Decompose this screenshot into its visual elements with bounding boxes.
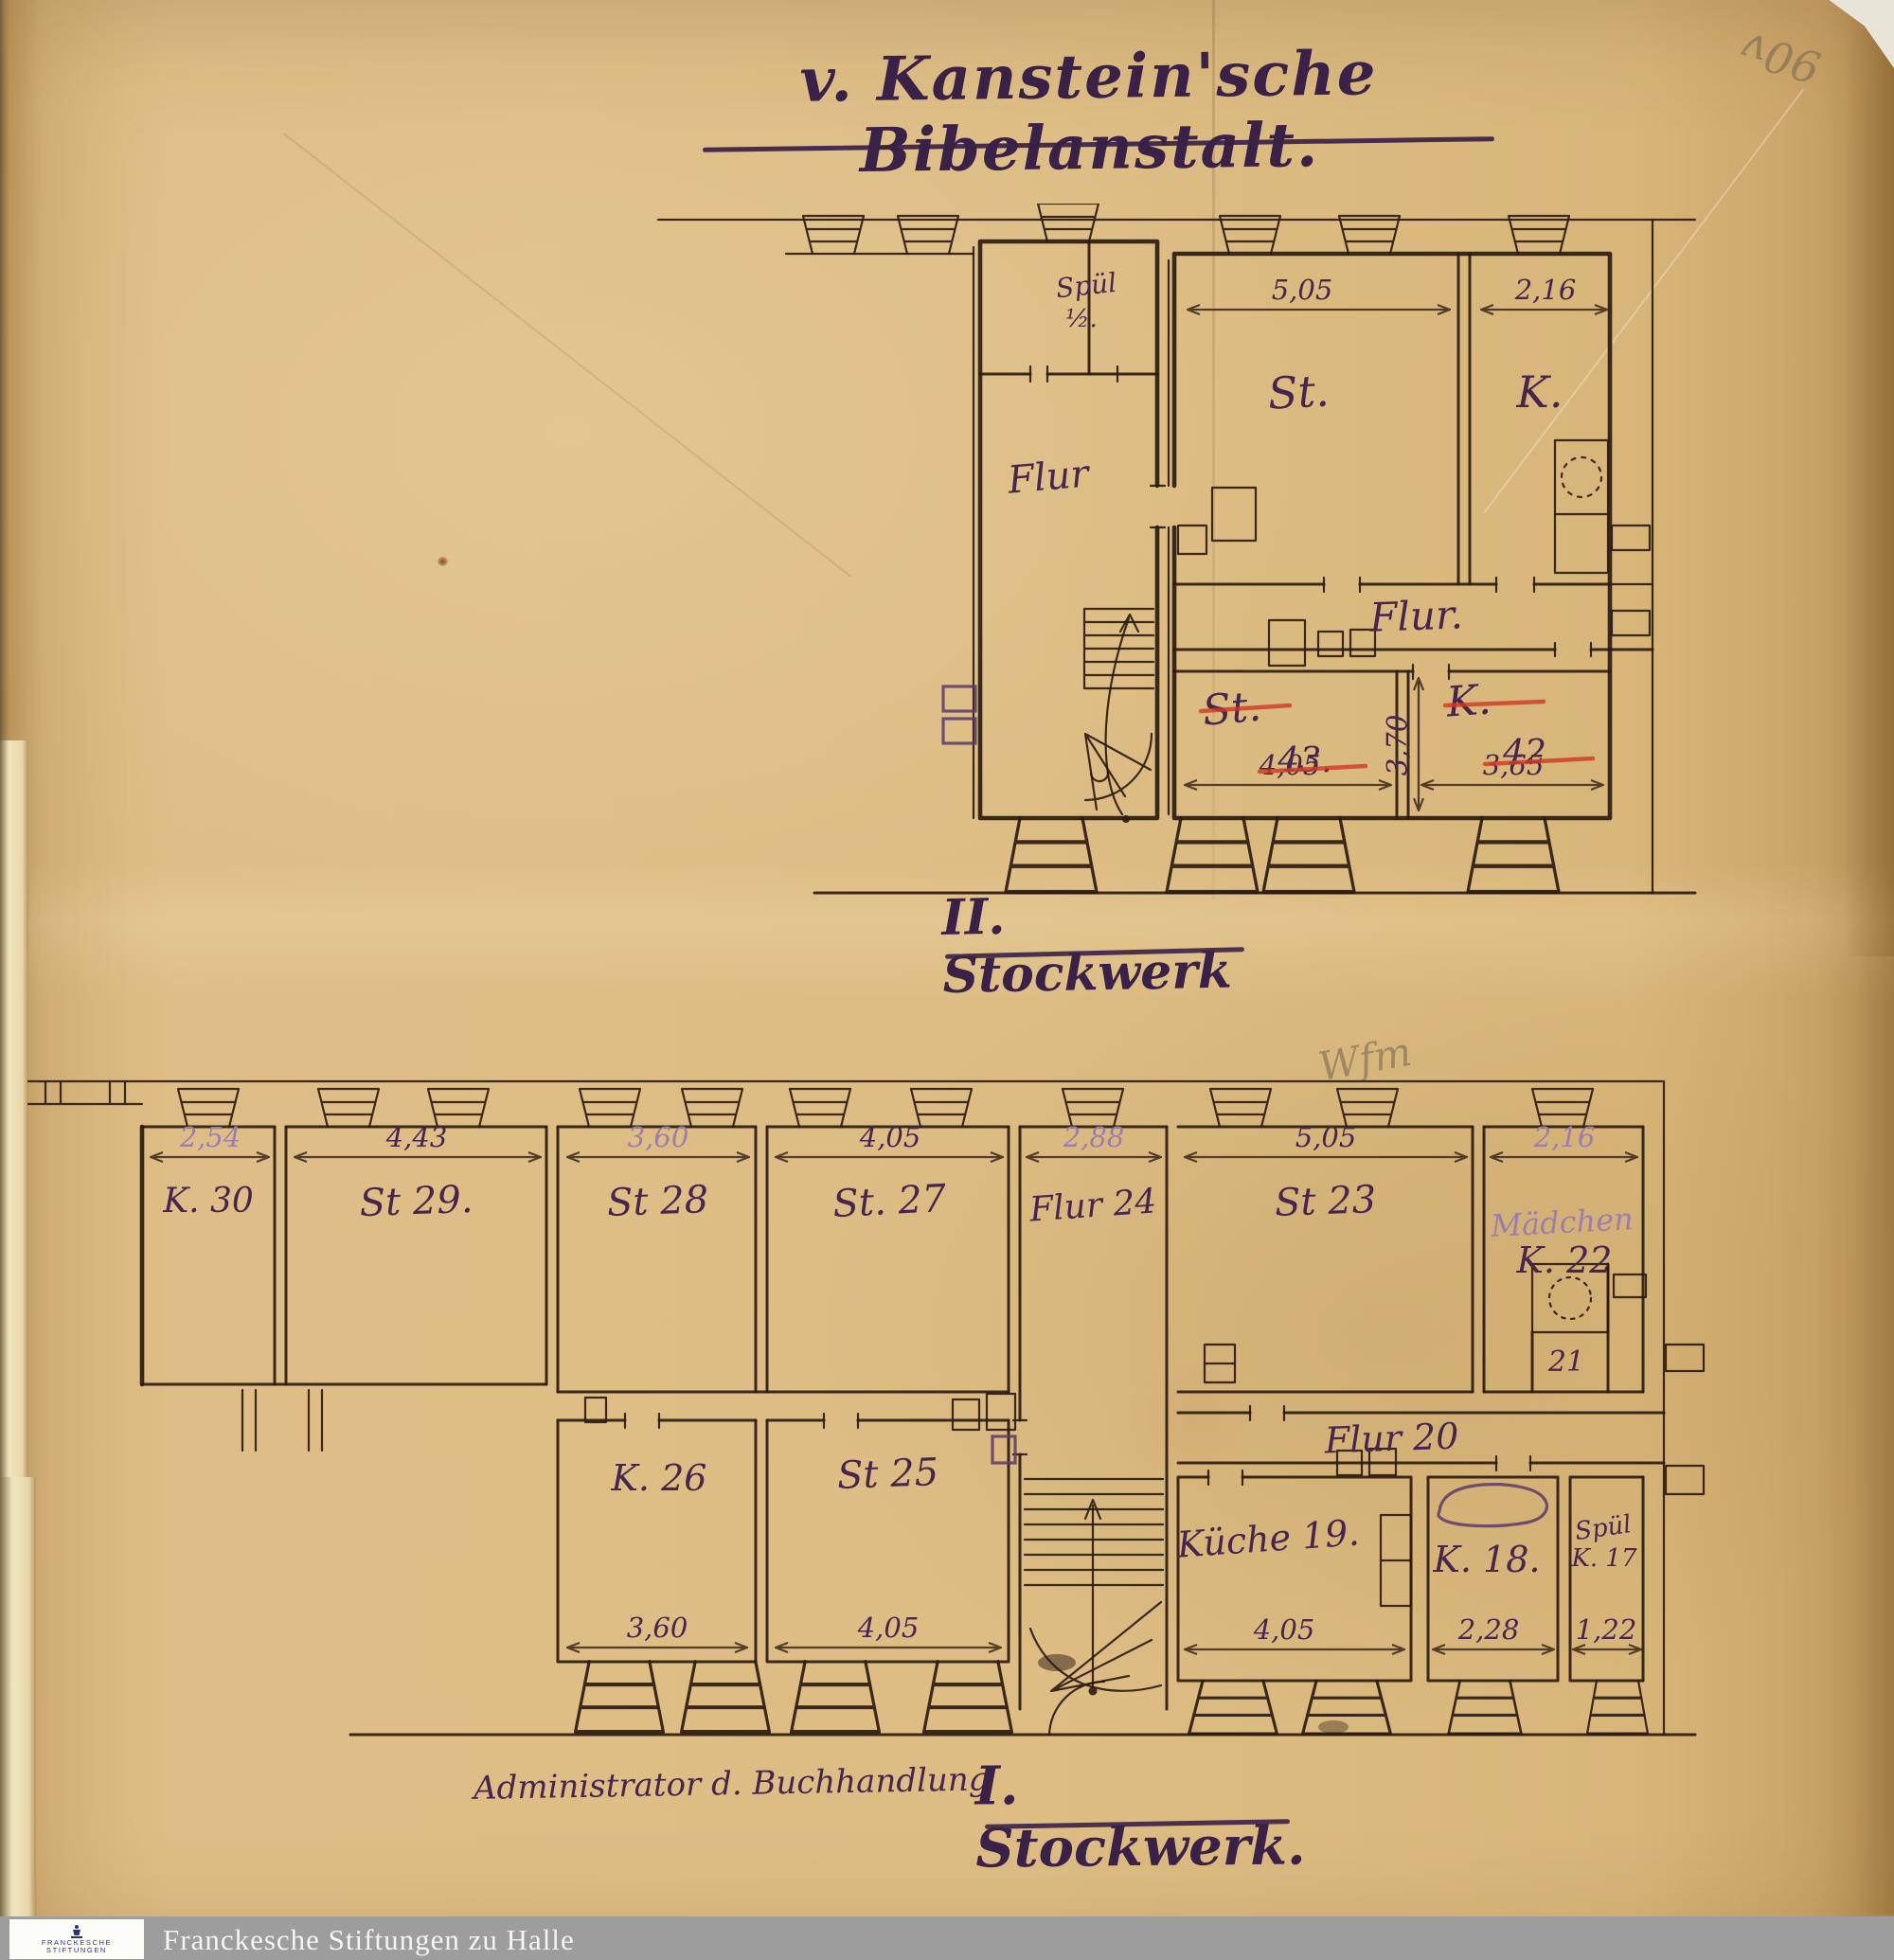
- room-label-k: K.: [1516, 366, 1563, 418]
- window-icon: [318, 1089, 379, 1127]
- room-label-flur20: Flur 20: [1323, 1416, 1459, 1462]
- window-icon: [682, 1662, 770, 1732]
- dim-k18: 2,28: [1434, 1613, 1553, 1649]
- upper-plan-stair: [1084, 609, 1153, 823]
- room-label-st25: St 25: [836, 1451, 939, 1498]
- window-icon: [1263, 818, 1354, 892]
- room-number-42: 42: [1502, 734, 1546, 773]
- room-label-st29: St 29.: [359, 1178, 473, 1225]
- room-label-k26: K. 26: [611, 1457, 707, 1499]
- dim-text: 2,88: [1063, 1121, 1125, 1153]
- room-label-k30: K. 30: [162, 1182, 254, 1221]
- window-icon: [1449, 1681, 1522, 1734]
- footer-title: Franckesche Stiftungen zu Halle: [163, 1923, 575, 1957]
- window-icon: [682, 1089, 742, 1127]
- dim-text: 5,05: [1272, 274, 1333, 306]
- window-icon: [576, 1662, 664, 1732]
- room-label-st28: St 28: [606, 1178, 709, 1225]
- window-icon: [1468, 818, 1559, 892]
- page-edge-right-lower: [1856, 956, 1894, 1915]
- window-icon: [1587, 1681, 1648, 1734]
- dim-st25: 4,05: [777, 1612, 1000, 1648]
- page-edge-right: [1845, 0, 1894, 956]
- dim-upper-k-width: 2,16: [1482, 274, 1606, 310]
- lower-plan-fixtures: [953, 1264, 1646, 1734]
- dim-k17: 1,22: [1574, 1613, 1640, 1649]
- dim-upper-k42-height: 3,70: [1381, 679, 1419, 810]
- upper-plan-windows: [803, 204, 1569, 892]
- window-icon: [1038, 204, 1099, 241]
- window-icon: [1339, 216, 1400, 254]
- window-icon: [1509, 216, 1569, 254]
- window-icon: [898, 216, 958, 254]
- window-icon: [924, 1662, 1012, 1732]
- room-label-st: St.: [1266, 365, 1330, 419]
- franckesche-logo-icon: [69, 1924, 84, 1939]
- dim-text: 2,54: [179, 1121, 241, 1153]
- room-label-spuel: Spül: [1054, 267, 1117, 305]
- room-label-k18: K. 18.: [1433, 1539, 1541, 1580]
- dim-text: 4,05: [859, 1121, 921, 1153]
- room-label-21: 21: [1547, 1345, 1584, 1379]
- dim-text: 4,05: [1253, 1613, 1315, 1646]
- scanned-floorplan-page: v. Kanstein'sche Bibelanstalt. 90v: [0, 0, 1894, 1960]
- window-icon: [792, 1662, 880, 1732]
- window-icon: [1167, 818, 1258, 892]
- rust-stain: [438, 557, 448, 566]
- room-label-maedchen: Mädchen: [1489, 1201, 1634, 1244]
- dim-text: 3,70: [1381, 715, 1413, 776]
- logo-caption-line2: STIFTUNGEN: [46, 1947, 107, 1955]
- room-label-k22: K. 22: [1516, 1239, 1613, 1281]
- dim-text: 1,22: [1576, 1613, 1637, 1646]
- caption-ii-stockwerk: II. Stockwerk: [941, 883, 1265, 1005]
- page-title: v. Kanstein'sche Bibelanstalt.: [624, 36, 1554, 189]
- dim-text: 2,16: [1514, 274, 1577, 306]
- dim-kueche19: 4,05: [1186, 1613, 1403, 1649]
- annotation-administrator: Administrator d. Buchhandlung: [473, 1760, 1005, 1808]
- caption-i-stockwerk: I. Stockwerk.: [974, 1753, 1297, 1880]
- window-icon: [803, 216, 864, 254]
- dim-text: 3,60: [627, 1612, 688, 1644]
- dim-text: 4,43: [385, 1121, 448, 1153]
- room-label-st23: St 23: [1274, 1178, 1377, 1225]
- window-icon: [1006, 818, 1097, 892]
- dim-text: 2,28: [1457, 1613, 1520, 1646]
- archive-note: 90v: [1735, 22, 1826, 93]
- room-label-flur24: Flur 24: [1027, 1182, 1158, 1229]
- lower-floor-plan: 2,54 4,43 3,60 4,05 2,88 5,05 2,16: [19, 1023, 1714, 1790]
- window-icon: [1220, 216, 1280, 254]
- franckesche-logo: FRANCKESCHE STIFTUNGEN: [9, 1919, 144, 1959]
- dim-text: 2,16: [1533, 1121, 1596, 1153]
- room-label-k17-spuel: Spül: [1573, 1510, 1633, 1546]
- room-label-spuel-fraction: ½.: [1065, 305, 1097, 333]
- dim-text: 4,05: [857, 1612, 920, 1644]
- room-label-kueche19: Küche 19.: [1174, 1511, 1360, 1565]
- window-icon: [1210, 1089, 1271, 1127]
- room-label-corridor-flur: Flur.: [1367, 591, 1463, 640]
- dim-upper-st-width: 5,05: [1188, 274, 1449, 310]
- room-label-st27: St. 27: [831, 1177, 948, 1226]
- window-icon: [790, 1089, 850, 1127]
- upper-plan-walls: [658, 220, 1695, 893]
- room-label-hall-flur: Flur: [1005, 452, 1093, 503]
- room-number-43: 43.: [1277, 741, 1331, 780]
- room-label-k42: K.: [1444, 675, 1492, 726]
- dim-text: 5,05: [1295, 1121, 1357, 1153]
- lower-plan-stair: [1025, 1479, 1163, 1735]
- dim-k26: 3,60: [568, 1612, 746, 1648]
- upper-floor-plan: 5,05 2,16 4,05 3,65 3,70 Spül ½. Flur St…: [606, 204, 1705, 961]
- room-label-k17: K. 17: [1570, 1544, 1636, 1573]
- window-icon: [1189, 1681, 1278, 1734]
- dim-text: 3,60: [628, 1121, 689, 1153]
